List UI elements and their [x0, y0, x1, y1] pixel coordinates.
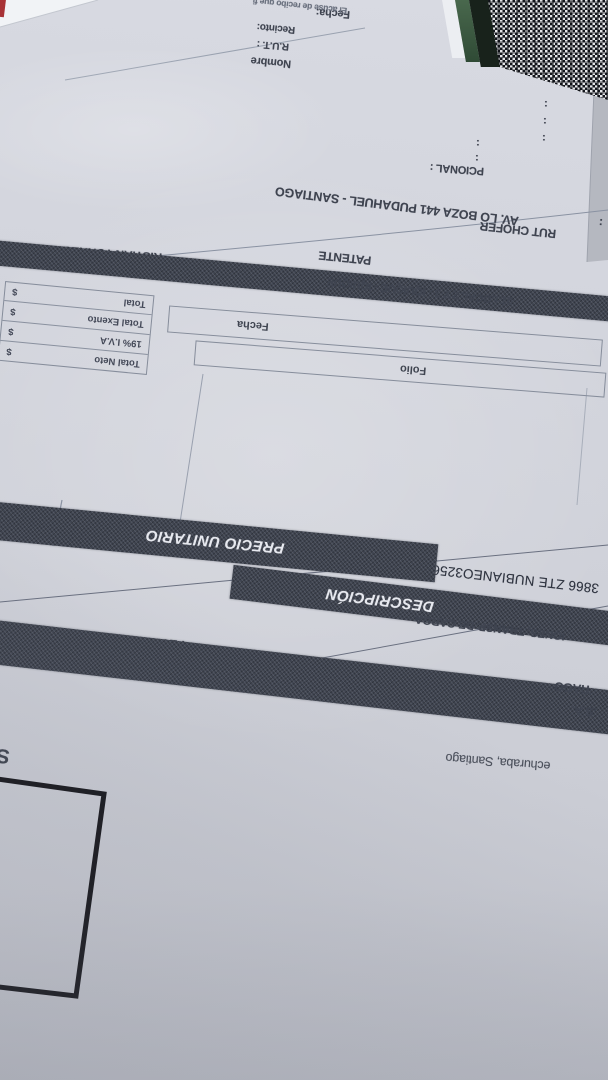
totals-label: Total Neto — [94, 354, 141, 369]
company-sa-fragment: .S.A. — [571, 703, 598, 719]
descripcion-label: DESCRIPCIÓN — [325, 585, 435, 615]
left-edge-letter-fragment: S — [0, 743, 10, 767]
totals-currency: $ — [10, 306, 16, 317]
field-label-fecha: Fecha — [236, 318, 269, 332]
totals-label: 19% I.V.A — [100, 334, 143, 349]
colon-mark: : — [476, 137, 479, 149]
totals-currency: $ — [8, 326, 14, 337]
totals-label: Total — [123, 296, 146, 309]
totals-label: Total Exento — [87, 313, 144, 329]
field-label-folio: Folio — [400, 363, 427, 377]
totals-box: Total Neto $ 19% I.V.A $ Total Exento $ … — [0, 281, 154, 375]
colon-mark: : — [544, 98, 547, 110]
colon-mark: : — [475, 152, 478, 164]
colon-mark: : — [543, 115, 546, 127]
colon-mark: : — [542, 132, 545, 144]
totals-currency: $ — [12, 286, 18, 297]
stamp-square — [0, 778, 104, 996]
precio-unitario-label: PRECIO UNITARIO — [145, 527, 285, 557]
document-photo: Fecha: El acuse de recibo que fi Recinto… — [0, 0, 608, 1080]
totals-currency: $ — [6, 345, 12, 356]
